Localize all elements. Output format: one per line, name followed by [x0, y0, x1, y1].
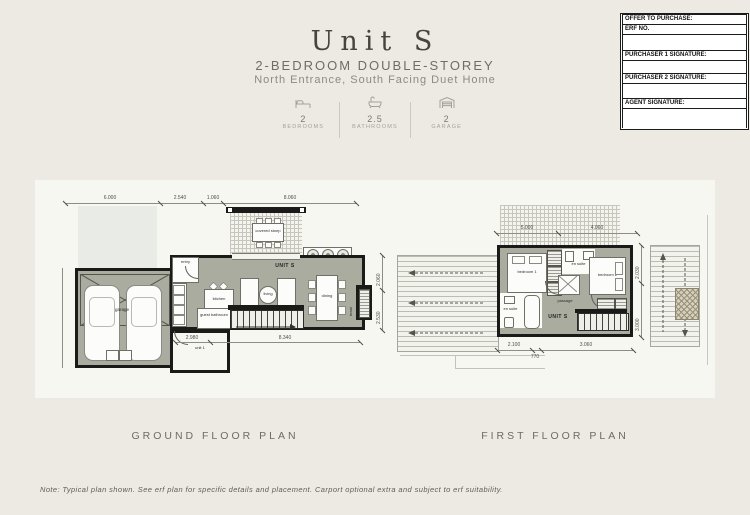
page-subtitle: 2-BEDROOM DOUBLE-STOREY [175, 58, 575, 73]
dimension-label: 770 [525, 354, 545, 360]
dimension-label: 2.980 [177, 335, 207, 341]
disclaimer-note: Note: Typical plan shown. See erf plan f… [40, 485, 700, 494]
dimension-label: 8.060 [260, 195, 320, 201]
utility-fixture [119, 350, 132, 361]
site-boundary-line [707, 215, 708, 365]
stat-garage-label: GARAGE [411, 124, 482, 130]
first-unit-label: UNIT S [543, 314, 573, 320]
stat-garage-value: 2 [411, 114, 482, 124]
dimension-line [496, 233, 637, 234]
pillow [529, 256, 542, 264]
site-boundary-line [400, 355, 545, 356]
guest-bathroom-label: guest bathroom [198, 313, 230, 317]
pergola-beam [226, 207, 306, 213]
dimension-line [497, 350, 633, 351]
appliance-fixture [173, 295, 185, 305]
dimension-label: 3.000 [635, 293, 641, 331]
garage-label: garage [107, 308, 137, 313]
dimension-label: 2.540 [165, 195, 195, 201]
ground-floor-plan: 6.000 2.540 1.060 8.060 covered stoep [60, 190, 390, 400]
brochure-page: Unit S 2-BEDROOM DOUBLE-STOREY North Ent… [0, 0, 750, 515]
dimension-line [62, 268, 63, 368]
agent-signature-field [622, 108, 747, 128]
pillow [615, 278, 623, 291]
dimension-line [175, 342, 360, 343]
dining-chair [308, 280, 316, 289]
dining-table: dining [316, 275, 338, 321]
dimension-label: 2.100 [498, 342, 530, 348]
dimension-label: 2.030 [635, 251, 641, 279]
bed: bedroom 1 [507, 253, 547, 293]
living-rug: living [259, 286, 277, 304]
dimension-label: 2.530 [376, 296, 382, 324]
roof-fall-arrows [403, 263, 491, 346]
dimension-label: 8.340 [255, 335, 315, 341]
ground-unit-label: UNIT S [265, 263, 305, 269]
dimension-label: 4.060 [577, 225, 617, 231]
ground-floor-caption: GROUND FLOOR PLAN [95, 430, 335, 442]
site-boundary-line [455, 355, 456, 368]
basin-fixture [504, 296, 515, 304]
dimension-line [641, 245, 642, 337]
stoep-chair [265, 242, 272, 248]
stair-direction-arrow [236, 317, 296, 335]
bed: bedroom 2 [589, 257, 626, 295]
stat-bedrooms-value: 2 [268, 114, 339, 124]
garage-icon [439, 96, 455, 113]
page-title: Unit S [175, 26, 575, 57]
stat-garage: 2 GARAGE [411, 96, 482, 144]
stats-row: 2 BEDROOMS 2.5 BATHROOMS 2 GARAGE [268, 96, 482, 144]
passage-label: passage [545, 299, 585, 303]
stat-bathrooms-value: 2.5 [340, 114, 411, 124]
braai-label: braai [348, 290, 353, 316]
stoep-table: covered stoep [252, 223, 284, 242]
pergola-post [300, 208, 304, 212]
appliance-fixture [173, 305, 185, 315]
dining-chair [338, 293, 346, 302]
page-tagline: North Entrance, South Facing Duet Home [175, 74, 575, 86]
site-boundary-line [455, 368, 545, 369]
first-floor-caption: FIRST FLOOR PLAN [435, 430, 675, 442]
stoep-chair [274, 242, 281, 248]
dimension-label: 2.060 [376, 260, 382, 286]
unit1-label: unit 1 [173, 346, 227, 350]
stat-bedrooms-label: BEDROOMS [268, 124, 339, 130]
pergola-post [228, 208, 232, 212]
offer-to-purchase-box: OFFER TO PURCHASE: ERF NO. PURCHASER 1 S… [620, 13, 749, 130]
dimension-label: 1.060 [198, 195, 228, 201]
living-label: living [260, 292, 276, 296]
stat-bathrooms-label: BATHROOMS [340, 124, 411, 130]
bedroom1-label: bedroom 1 [508, 270, 546, 274]
stoep-chair [256, 242, 263, 248]
first-floor-plan: bedroom 1 en suite bedroom 2 passage en … [395, 195, 715, 400]
bathtub-fixture [524, 295, 540, 329]
appliance-fixture [173, 285, 185, 295]
sliding-door [232, 253, 300, 260]
guest-bathroom-room: guest bathroom [197, 308, 231, 329]
appliance-fixture [173, 315, 185, 325]
stat-bathrooms: 2.5 BATHROOMS [340, 96, 411, 144]
dining-chair [308, 306, 316, 315]
pillow [512, 256, 525, 264]
dining-chair [338, 280, 346, 289]
shower-box [558, 275, 580, 295]
kitchen-label: kitchen [205, 297, 233, 301]
pillow [615, 262, 623, 275]
dining-chair [338, 306, 346, 315]
covered-stoep-label: covered stoep [253, 229, 283, 233]
dimension-label: 6.000 [80, 195, 140, 201]
bed-icon [295, 96, 311, 113]
bath-icon [367, 96, 383, 113]
purchaser2-signature-field [622, 83, 747, 99]
staircase [577, 313, 629, 331]
dimension-label: 3.060 [557, 342, 615, 348]
dimension-line [65, 203, 357, 204]
dimension-label: 5.000 [507, 225, 547, 231]
cupboard [547, 250, 562, 266]
entry-label: entry [173, 260, 198, 264]
toilet-fixture [504, 317, 514, 328]
braai-grate [359, 289, 370, 318]
purchaser1-signature-field [622, 60, 747, 74]
stat-bedrooms: 2 BEDROOMS [268, 96, 339, 144]
dining-chair [308, 293, 316, 302]
erf-no-field [622, 34, 747, 51]
planter-hatch-box [675, 288, 699, 320]
driveway-area [78, 206, 157, 268]
dining-label: dining [317, 294, 337, 298]
utility-fixture [106, 350, 119, 361]
ensuite1-label: en suite [498, 307, 523, 311]
